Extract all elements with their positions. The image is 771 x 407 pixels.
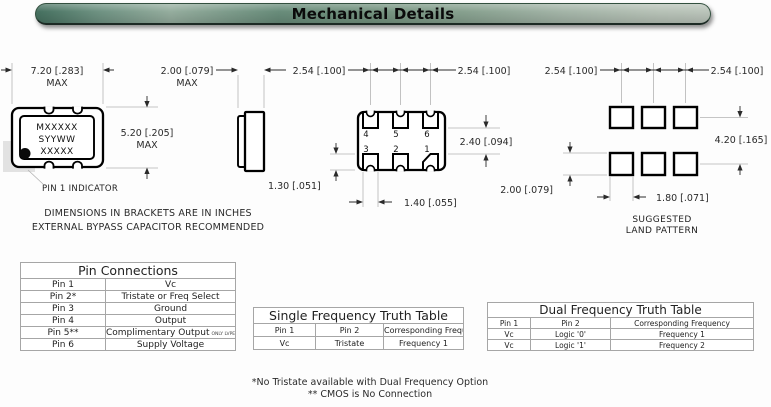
land-pitch-right-label: 2.54 [.100]: [711, 66, 764, 77]
pin-number-2: 2: [393, 145, 398, 155]
land-pad: [610, 153, 633, 175]
single-frequency-truth-table: Single Frequency Truth Table Pin 1 Pin 2…: [253, 307, 463, 350]
side-thickness-label: 2.00 [.079]: [161, 66, 214, 77]
pin-cell: Pin 2*: [21, 291, 106, 303]
bottom-pitch-left-label: 2.54 [.100]: [293, 66, 346, 77]
table-row: Vc Logic '0' Frequency 1: [488, 329, 754, 340]
pad-gap-label: 2.40 [.094]: [460, 137, 513, 148]
table-row: Vc Logic '1' Frequency 2: [488, 340, 754, 351]
table-row: Pin 2*Tristate or Freq Select: [21, 291, 236, 303]
datasheet-page: Mechanical Details MXXXXX SYYWW XXXXX PI…: [0, 0, 771, 407]
cell: Vc: [488, 329, 531, 340]
table-row: Pin 1Vc: [21, 279, 236, 291]
land-pattern-drawing: 2.54 [.100] 2.54 [.100] 4.20 [.165] 1.80…: [545, 63, 768, 236]
land-pad: [642, 153, 665, 175]
drawing-notes: DIMENSIONS IN BRACKETS ARE IN INCHES EXT…: [27, 207, 269, 235]
table-row: Pin 3Ground: [21, 303, 236, 315]
function-cell: Vc: [106, 279, 236, 291]
pad-gap-dimension: 2.40 [.094]: [448, 115, 512, 167]
footnote-line: *No Tristate available with Dual Frequen…: [130, 377, 610, 389]
row-offset-dimension: 2.00 [.079]: [500, 142, 607, 196]
table-row: Pin 5** Complimentary OutputONLY LVPECL …: [21, 327, 236, 339]
cell: Tristate: [316, 337, 384, 350]
bottom-pitch-dimension: 2.54 [.100] 2.54 [.100]: [293, 63, 511, 105]
cell: Vc: [488, 340, 531, 351]
pin-cell: Pin 5**: [21, 327, 106, 339]
marking-line1: MXXXXX: [36, 123, 78, 133]
dual-frequency-truth-table: Dual Frequency Truth Table Pin 1 Pin 2 C…: [487, 302, 753, 351]
pad-height-dimension: 1.30 [.051]: [268, 143, 355, 192]
cell: Logic '0': [531, 329, 611, 340]
footnote-line: ** CMOS is No Connection: [130, 389, 610, 401]
land-pad-width-label: 1.80 [.071]: [656, 193, 709, 204]
table-header-row: Pin 1 Pin 2 Corresponding Frequency: [254, 324, 464, 337]
castellation: [397, 166, 405, 172]
header-cell: Pin 1: [254, 324, 316, 337]
single-table-title: Single Frequency Truth Table: [254, 308, 464, 324]
marking-line2: SYYWW: [38, 135, 75, 145]
table-row: Pin 4Output: [21, 315, 236, 327]
pin-number-6: 6: [424, 130, 429, 140]
land-pattern-caption-line2: LAND PATTERN: [626, 226, 699, 236]
land-pitch-left-label: 2.54 [.100]: [545, 66, 598, 77]
pin-connections-table: Pin Connections Pin 1Vc Pin 2*Tristate o…: [20, 262, 235, 351]
land-row-span-label: 4.20 [.165]: [715, 135, 768, 146]
pin-number-3: 3: [363, 145, 368, 155]
dual-table-title: Dual Frequency Truth Table: [488, 303, 754, 318]
pin-cell: Pin 4: [21, 315, 106, 327]
land-row-span-dimension: 4.20 [.165]: [700, 106, 767, 175]
pin-cell: Pin 3: [21, 303, 106, 315]
land-pad: [610, 107, 633, 128]
land-pad: [674, 153, 697, 175]
header-cell: Pin 2: [531, 318, 611, 329]
pad-height-label: 1.30 [.051]: [268, 181, 321, 192]
land-pad: [674, 107, 697, 128]
header-cell: Pin 1: [488, 318, 531, 329]
marking-line3: XXXXX: [40, 147, 73, 157]
header-cell: Pin 2: [316, 324, 384, 337]
land-pad: [642, 107, 665, 128]
land-pattern-caption-line1: SUGGESTED: [632, 215, 691, 225]
function-cell: Tristate or Freq Select: [106, 291, 236, 303]
cell: Frequency 2: [611, 340, 754, 351]
pin-number-1: 1: [424, 145, 429, 155]
cell: Vc: [254, 337, 316, 350]
side-body: [245, 112, 264, 171]
pin-number-4: 4: [363, 130, 368, 140]
header-cell: Corresponding Frequency: [611, 318, 754, 329]
bottom-view-drawing: 4 5 6 3 2 1 2.54 [.100] 2.54 [.100] 2.40…: [293, 63, 607, 209]
function-note: ONLY LVPECL & LVDS: [211, 332, 235, 337]
footnotes: *No Tristate available with Dual Frequen…: [130, 377, 610, 400]
row-offset-label: 2.00 [.079]: [500, 185, 553, 196]
pad-width-label: 1.40 [.055]: [404, 198, 457, 209]
bottom-pitch-right-label: 2.54 [.100]: [458, 66, 511, 77]
front-width-label: 7.20 [.283]: [31, 66, 84, 77]
land-pad-width-dimension: 1.80 [.071]: [597, 177, 709, 204]
side-thickness-max: MAX: [176, 78, 198, 89]
pin-cell: Pin 6: [21, 339, 106, 351]
pin1-leader-line: [28, 170, 43, 184]
cell: Frequency 1: [384, 337, 464, 350]
pin1-indicator-label: PIN 1 INDICATOR: [42, 184, 118, 194]
function-text: Complimentary Output: [106, 328, 209, 338]
function-cell: Output: [106, 315, 236, 327]
front-width-dimension: 7.20 [.283] MAX: [1, 63, 114, 104]
front-height-dimension: 5.20 [.205] MAX: [106, 96, 173, 179]
table-row: Pin 6Supply Voltage: [21, 339, 236, 351]
pin1-indicator-dot: [20, 148, 31, 159]
function-cell: Ground: [106, 303, 236, 315]
pin-number-5: 5: [393, 130, 398, 140]
pin-connections-title: Pin Connections: [21, 263, 236, 279]
header-cell: Corresponding Frequency: [384, 324, 464, 337]
front-height-max: MAX: [136, 140, 158, 151]
table-header-row: Pin 1 Pin 2 Corresponding Frequency: [488, 318, 754, 329]
front-width-max: MAX: [46, 78, 68, 89]
notch: [73, 107, 82, 114]
castellation: [367, 166, 375, 172]
table-row: Vc Tristate Frequency 1: [254, 337, 464, 350]
castellation: [427, 166, 435, 172]
land-pitch-dimension: 2.54 [.100] 2.54 [.100]: [545, 63, 764, 103]
cell: Logic '1': [531, 340, 611, 351]
note-line: DIMENSIONS IN BRACKETS ARE IN INCHES: [27, 207, 269, 221]
pin-cell: Pin 1: [21, 279, 106, 291]
pad-width-dimension: 1.40 [.055]: [349, 172, 457, 209]
notch: [45, 107, 54, 114]
cell: Frequency 1: [611, 329, 754, 340]
castellation: [397, 111, 405, 117]
side-thickness-dimension: 2.00 [.079] MAX: [161, 66, 286, 108]
side-view-drawing: 2.00 [.079] MAX 1.30 [.051]: [161, 66, 355, 192]
castellation: [367, 111, 375, 117]
notch: [73, 162, 82, 169]
castellation: [427, 111, 435, 117]
function-cell: Complimentary OutputONLY LVPECL & LVDS: [106, 327, 236, 339]
front-height-label: 5.20 [.205]: [121, 128, 174, 139]
front-view-drawing: MXXXXX SYYWW XXXXX PIN 1 INDICATOR 7.20 …: [1, 63, 173, 194]
function-cell: Supply Voltage: [106, 339, 236, 351]
note-line: EXTERNAL BYPASS CAPACITOR RECOMMENDED: [27, 221, 269, 235]
notch: [45, 162, 54, 169]
